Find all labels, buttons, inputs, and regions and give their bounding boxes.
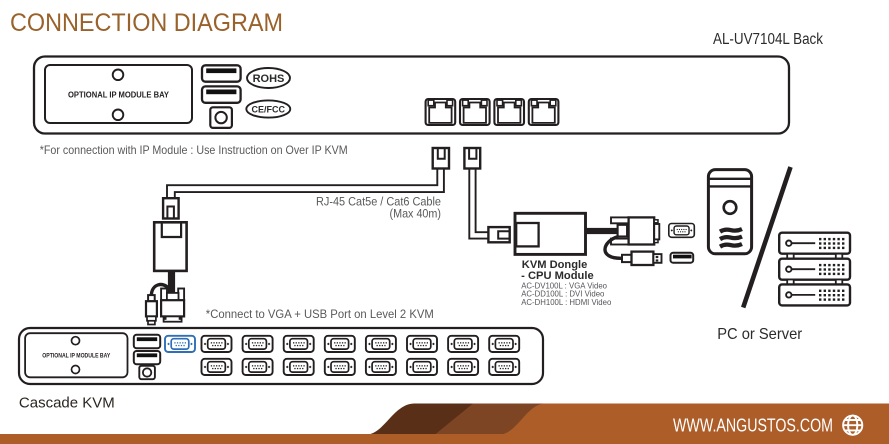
svg-text:OPTIONAL IP MODULE BAY: OPTIONAL IP MODULE BAY (42, 353, 111, 360)
svg-text:Cascade KVM: Cascade KVM (19, 395, 115, 412)
svg-text:ROHS: ROHS (253, 73, 285, 85)
svg-text:CE/FCC: CE/FCC (252, 105, 286, 115)
svg-text:OPTIONAL IP MODULE BAY: OPTIONAL IP MODULE BAY (68, 90, 169, 100)
svg-text:WWW.ANGUSTOS.COM: WWW.ANGUSTOS.COM (673, 416, 833, 436)
svg-text:AC-DH100L : HDMI Video: AC-DH100L : HDMI Video (521, 298, 612, 307)
svg-text:*For connection with IP Module: *For connection with IP Module : Use Ins… (40, 143, 348, 157)
svg-text:- CPU Module: - CPU Module (521, 270, 594, 282)
svg-text:(Max 40m): (Max 40m) (390, 207, 442, 221)
svg-text:PC or Server: PC or Server (717, 326, 802, 343)
svg-text:*Connect to VGA + USB Port on: *Connect to VGA + USB Port on Level 2 KV… (206, 307, 434, 321)
svg-text:CONNECTION DIAGRAM: CONNECTION DIAGRAM (10, 9, 283, 37)
svg-text:AL-UV7104L Back: AL-UV7104L Back (713, 31, 823, 48)
